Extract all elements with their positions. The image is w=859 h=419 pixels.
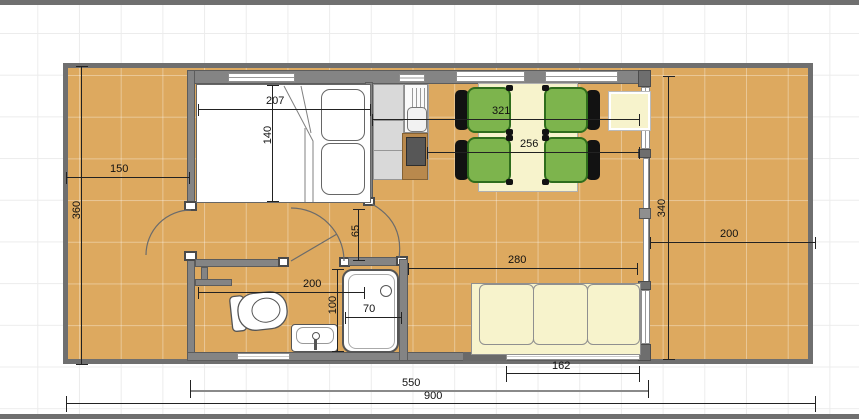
side-table[interactable] bbox=[609, 92, 650, 130]
bath-wall-right-segment bbox=[348, 257, 400, 266]
pillow-right[interactable] bbox=[321, 143, 365, 195]
right-window-lower[interactable] bbox=[641, 290, 650, 344]
sliding-door-handle[interactable] bbox=[639, 208, 651, 219]
dim-site-width: 900 bbox=[66, 403, 816, 404]
bath-wall-right bbox=[399, 259, 408, 361]
dim-site-depth: 360 bbox=[81, 66, 82, 365]
dim-deck-left-width: 150 bbox=[66, 177, 190, 178]
dim-bath-depth: 100 bbox=[337, 269, 338, 352]
wall-left-lower bbox=[187, 252, 195, 361]
dim-bed-depth: 140 bbox=[272, 85, 273, 202]
sofa-cushion bbox=[587, 284, 640, 345]
wall-left-upper bbox=[187, 70, 195, 210]
floor-plan-canvas: 150 360 207 140 321 256 340 200 65 200 1… bbox=[0, 0, 859, 419]
chair-seat bbox=[544, 137, 588, 183]
chair-top-right[interactable] bbox=[544, 87, 588, 133]
kitchen-counter[interactable] bbox=[373, 84, 404, 180]
sofa-cushion bbox=[533, 284, 588, 345]
chair-bottom-left[interactable] bbox=[467, 137, 511, 183]
chair-armrest bbox=[506, 85, 513, 91]
chair-bottom-right[interactable] bbox=[544, 137, 588, 183]
corner-post-top-right bbox=[638, 70, 651, 87]
stove[interactable] bbox=[406, 137, 426, 166]
kitchen-window[interactable] bbox=[399, 74, 425, 82]
bath-wall-left-segment bbox=[195, 259, 280, 267]
bedroom-window[interactable] bbox=[228, 73, 295, 82]
pillow-left[interactable] bbox=[321, 89, 365, 141]
dim-passage-width: 65 bbox=[358, 209, 359, 261]
chair-seat bbox=[544, 87, 588, 133]
dim-tub-width: 70 bbox=[345, 317, 402, 318]
chair-back bbox=[586, 90, 600, 130]
chair-armrest bbox=[506, 135, 513, 141]
dim-house-width: 550 bbox=[190, 390, 649, 392]
bath-closet-wall-h bbox=[195, 279, 232, 286]
dim-deck-right-width: 200 bbox=[650, 242, 816, 243]
bottom-window-edge bbox=[0, 414, 859, 419]
dim-house-depth: 340 bbox=[668, 76, 669, 360]
bath-window[interactable] bbox=[237, 353, 290, 360]
top-window-edge bbox=[0, 0, 859, 5]
dim-bath-width: 200 bbox=[198, 292, 365, 293]
dining-window-1[interactable] bbox=[456, 71, 525, 82]
chair-armrest bbox=[542, 135, 549, 141]
bath-door-jamb-left bbox=[278, 257, 289, 267]
chair-armrest bbox=[506, 179, 513, 185]
dim-lounge-width: 280 bbox=[408, 268, 638, 269]
bathtub-drain bbox=[380, 285, 392, 297]
chair-armrest bbox=[542, 179, 549, 185]
chair-armrest bbox=[542, 85, 549, 91]
deck-site bbox=[63, 63, 813, 364]
dim-rear-window-width: 162 bbox=[506, 373, 640, 374]
dining-window-2[interactable] bbox=[545, 71, 618, 82]
sliding-door[interactable] bbox=[643, 158, 649, 282]
dim-living-span-lower: 256 bbox=[427, 152, 640, 153]
sofa-cushion bbox=[479, 284, 534, 345]
chair-seat bbox=[467, 137, 511, 183]
faucet-stem bbox=[314, 339, 317, 350]
dim-bed-width: 207 bbox=[198, 109, 371, 110]
chair-back bbox=[586, 140, 600, 180]
dim-living-span-upper: 321 bbox=[372, 119, 640, 120]
